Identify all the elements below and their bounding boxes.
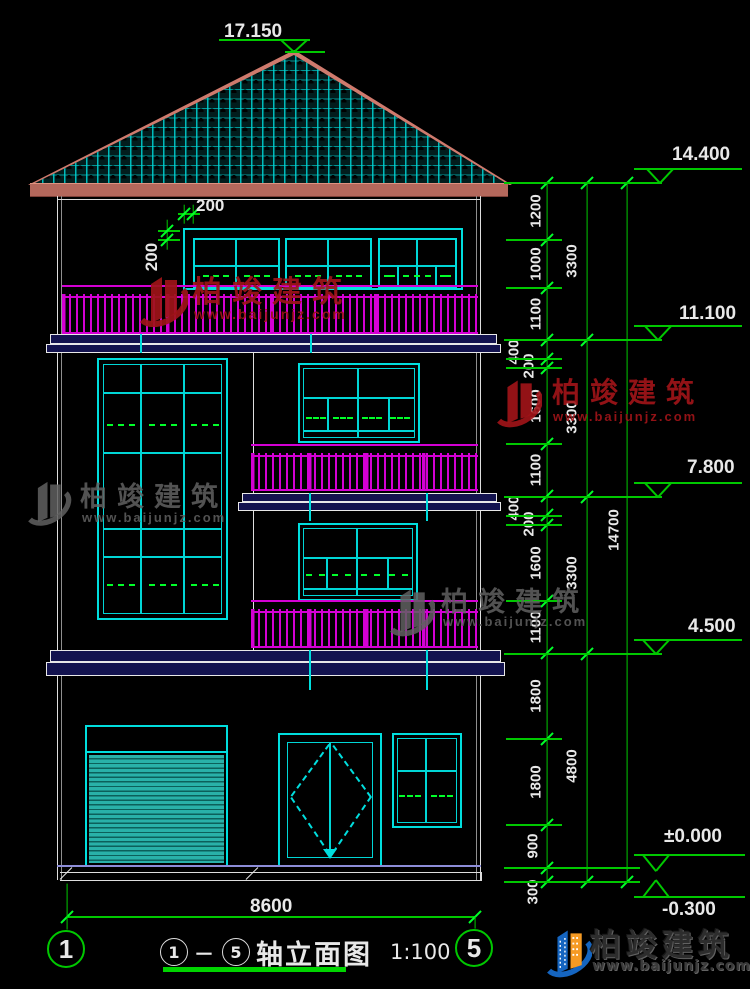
window-inner-frame — [397, 738, 457, 823]
parapet-top — [57, 199, 481, 200]
glass-open-dash — [107, 424, 135, 426]
elevation-label: ±0.000 — [664, 826, 722, 848]
elevation-bar — [634, 325, 742, 327]
dim-label: 1800 — [528, 765, 545, 798]
window-1f — [392, 733, 462, 828]
watermark-url: www.baijunjz.com — [443, 614, 587, 629]
dim-extension-line — [504, 339, 662, 340]
dim-extension-line — [506, 239, 562, 240]
window-inner-frame — [303, 368, 415, 438]
window-3f — [298, 363, 420, 443]
title-text: 轴立面图 — [256, 933, 372, 972]
watermark-text: 柏竣建筑 — [80, 475, 228, 514]
cornice-3f-upper — [242, 493, 497, 502]
mullion — [103, 392, 222, 394]
glass-open-dash — [149, 584, 177, 586]
watermark-text: 柏竣建筑 — [552, 371, 704, 411]
dim-label: 1100 — [528, 454, 545, 487]
elevation-label: 11.100 — [679, 303, 736, 325]
title-dash: － — [194, 938, 216, 967]
glass-open-dash — [191, 424, 219, 426]
glass-open-dash — [384, 275, 395, 277]
mullion — [303, 397, 415, 399]
dim-chain-line — [586, 183, 587, 882]
elevation-triangle — [655, 880, 669, 898]
mullion — [357, 368, 359, 438]
mullion — [388, 397, 390, 430]
balcony-railing-3f — [251, 444, 478, 491]
glass-open-dash — [390, 417, 410, 419]
mullion — [103, 452, 222, 454]
dim-label: 1000 — [528, 247, 545, 280]
downpipe — [426, 650, 428, 690]
dim-extension-line — [506, 524, 562, 525]
dim-extension-line — [158, 239, 180, 240]
mullion — [303, 430, 415, 432]
elevation-triangle — [657, 325, 671, 340]
garage-roller-door — [85, 725, 228, 867]
elevation-apex-line — [285, 51, 325, 53]
elevation-bar — [634, 482, 742, 484]
dim-extension-line — [474, 917, 475, 929]
dim-label-8600: 8600 — [250, 896, 292, 918]
mullion — [425, 738, 427, 823]
ground-slab-end — [481, 872, 482, 881]
dim-extension-line — [506, 287, 562, 288]
glass-open-dash — [389, 574, 408, 576]
title-axis-bubble-start: 1 — [160, 938, 188, 966]
mullion — [416, 240, 418, 286]
downpipe — [309, 493, 311, 521]
cornice-4f-lower — [46, 344, 501, 353]
mullion — [380, 265, 455, 267]
dim-extension-line — [504, 653, 662, 654]
title-underline — [163, 967, 346, 972]
elevation-triangle — [655, 854, 669, 871]
watermark-logo-icon — [16, 474, 72, 530]
elevation-label: 14.400 — [672, 144, 730, 166]
dim-extension-line — [506, 738, 562, 739]
glass-open-dash — [191, 584, 219, 586]
dim-extension-line — [504, 881, 640, 882]
watermark-url: www.baijunjz.com — [553, 409, 697, 424]
elevation-triangle — [659, 168, 673, 183]
watermark-logo-icon — [486, 371, 542, 433]
downpipe — [309, 650, 311, 690]
dim-label: 1200 — [528, 194, 545, 227]
dim-extension-line — [504, 182, 662, 183]
mullion — [326, 557, 328, 588]
glass-open-dash — [431, 795, 453, 797]
elevation-label: -0.300 — [662, 899, 716, 921]
elevation-triangle — [655, 639, 669, 654]
glass-open-dash — [399, 795, 421, 797]
window-4f-3 — [378, 238, 457, 288]
door-center-stile — [329, 742, 331, 858]
wall-right — [480, 196, 481, 880]
dim-extension-line — [506, 358, 562, 359]
dim-extension-line — [158, 230, 180, 231]
glass-open-dash — [107, 584, 135, 586]
drawing-title: 1 － 5 轴立面图 1:100 — [160, 931, 451, 973]
cornice-1f-upper — [50, 650, 501, 662]
garage-door-slats — [89, 755, 224, 863]
dim-label: 1100 — [528, 298, 545, 331]
axis-bubble-1: 1 — [47, 930, 85, 968]
glass-open-dash — [306, 574, 325, 576]
ground-slab-top — [60, 872, 481, 873]
dim-label-200: 200 — [142, 243, 162, 271]
dim-extension-line — [66, 884, 67, 930]
ground-hatch — [246, 868, 259, 881]
roof-tiles — [31, 55, 509, 185]
glass-open-dash — [440, 275, 451, 277]
elevation-bar — [634, 896, 745, 898]
elevation-bar — [219, 39, 310, 41]
title-scale: 1:100 — [390, 940, 451, 964]
watermark-text: 柏竣建筑 — [192, 267, 352, 311]
dim-extension-line — [506, 515, 562, 516]
glass-open-dash — [149, 424, 177, 426]
dim-extension-line — [504, 867, 640, 868]
title-axis-bubble-end: 5 — [222, 938, 250, 966]
dim-label: 4800 — [564, 749, 581, 782]
glass-open-dash — [333, 417, 353, 419]
dim-extension-line — [506, 367, 562, 368]
mullion — [327, 397, 329, 430]
elevation-label: 7.800 — [687, 457, 735, 479]
glass-open-dash — [361, 574, 380, 576]
cornice-3f-lower — [238, 502, 501, 511]
door-swing-arrow — [323, 849, 337, 859]
cornice-4f-upper — [50, 334, 497, 344]
dim-label: 900 — [525, 833, 542, 858]
watermark-url: www.baijunjz.com — [82, 510, 226, 525]
elevation-label: 4.500 — [688, 616, 736, 638]
watermark-url: www.baijunjz.com — [194, 306, 347, 322]
mullion — [397, 265, 399, 286]
site-logo: 柏竣建筑 www.baijunjz.com — [536, 920, 750, 986]
downpipe — [310, 334, 312, 353]
elevation-bar — [634, 854, 745, 856]
dim-label-200: 200 — [196, 196, 224, 216]
downpipe — [426, 493, 428, 521]
roof-eave-band — [30, 183, 508, 197]
dim-extension-line — [506, 824, 562, 825]
mullion — [356, 528, 358, 596]
mullion — [103, 528, 222, 530]
railing-balusters — [251, 453, 478, 491]
garage-door-header — [87, 727, 226, 753]
mullion — [397, 770, 457, 772]
watermark-logo-icon — [128, 268, 188, 332]
elevation-triangle — [642, 854, 656, 871]
axis-bubble-5: 5 — [455, 929, 493, 967]
glass-open-dash — [403, 275, 431, 277]
dim-label: 3300 — [564, 244, 581, 277]
entry-door — [278, 733, 382, 867]
dim-label: 14700 — [606, 509, 623, 551]
cornice-1f-lower — [46, 662, 505, 676]
elevation-drawing: 1 － 5 轴立面图 1:100 柏竣建筑 www.baijunjz.com 1… — [0, 0, 750, 989]
elevation-triangle — [642, 880, 656, 898]
ground-slab-bottom — [60, 880, 481, 881]
mullion — [435, 265, 437, 286]
glass-open-dash — [362, 417, 382, 419]
dim-extension-line — [504, 496, 662, 497]
downpipe — [140, 334, 142, 353]
brand-url: www.baijunjz.com — [592, 958, 750, 974]
dim-extension-line — [166, 220, 167, 250]
mullion — [303, 557, 413, 559]
wall-left — [57, 196, 58, 880]
elevation-triangle — [657, 482, 671, 497]
elevation-bar — [634, 639, 742, 641]
dim-chain-line — [626, 183, 627, 882]
mullion — [103, 556, 222, 558]
brand-logo-icon — [536, 920, 592, 984]
ground-line-blue — [57, 865, 481, 867]
glass-open-dash — [332, 574, 351, 576]
glass-open-dash — [306, 417, 326, 419]
dim-label: 1800 — [528, 679, 545, 712]
dim-extension-line — [506, 443, 562, 444]
elevation-bar — [634, 168, 742, 170]
dim-label: 300 — [525, 879, 542, 904]
watermark-logo-icon — [379, 581, 435, 641]
dim-label: 1600 — [528, 546, 545, 579]
